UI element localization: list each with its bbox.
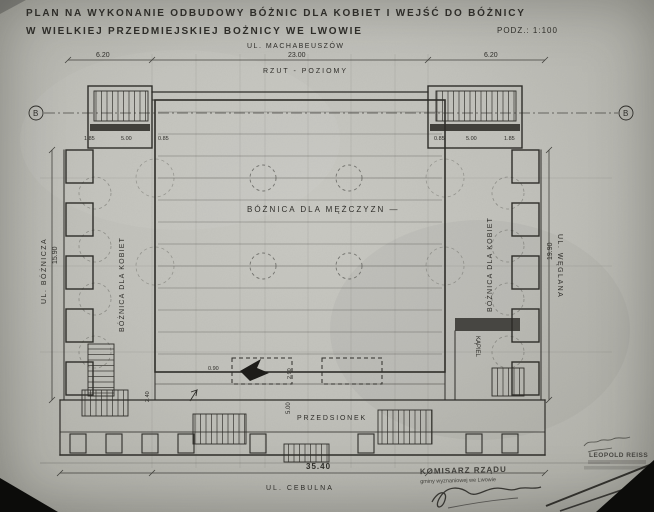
section-marker-left: B [33, 109, 38, 118]
room-label-main-hall: BÓŻNICA DLA MĘŻCZYZN — [247, 205, 399, 214]
new-wall-fill-right [430, 124, 520, 131]
staircase-annex [492, 368, 524, 396]
room-label-right-gallery: BÓŻNICA DLA KOBIET [485, 217, 494, 312]
dim-entry-depth: 2.90 [287, 368, 293, 379]
plan-title-line1: PLAN NA WYKONANIE ODBUDOWY BÓŻNIC DLA KO… [26, 6, 526, 19]
dim-stair-small: 2.40 [145, 391, 151, 402]
dim-stair-left-a: 1.85 [84, 136, 95, 142]
scale-note: PODZ.: 1:100 [497, 26, 558, 35]
street-label-bottom: UL. CEBULNA [266, 485, 334, 492]
staircase-top-left [94, 91, 148, 121]
staircase-bottom-entry [284, 444, 329, 462]
section-marker-right: B [623, 109, 628, 118]
dim-stair-right-c: 1.85 [504, 136, 515, 142]
architect-stamp-name: LEOPOLD REISS [589, 452, 648, 459]
dim-right-height: 19.90 [547, 242, 554, 260]
street-label-top: UL. MACHABEUSZÓW [247, 41, 345, 50]
dim-stair-right-b: 5.00 [466, 136, 477, 142]
architect-stamp-line2 [588, 460, 646, 464]
staircase-bottom-left [82, 390, 128, 416]
street-label-right: UL. WĘGLANA [556, 234, 563, 298]
street-label-left: UL. BÓŻNICZA [39, 238, 48, 304]
floor-plan-drawing: B B PLAN NA WYKONANIE ODBUDOWY BÓŻNIC DL… [0, 0, 654, 512]
dim-top-center: 23.00 [288, 52, 306, 59]
dim-top-left: 6.20 [96, 52, 110, 59]
scanned-architectural-plan: B B PLAN NA WYKONANIE ODBUDOWY BÓŻNIC DL… [0, 0, 654, 512]
dim-vestibule-depth: 5.00 [286, 402, 292, 414]
staircase-left-wing [88, 344, 114, 396]
new-wall-fill-left [90, 124, 150, 131]
dim-stair-left-b: 5.00 [121, 136, 132, 142]
staircase-top-right [436, 91, 516, 121]
room-label-bath: KĄPIEL [474, 336, 480, 358]
room-label-left-gallery: BÓŻNICA DLA KOBIET [117, 237, 126, 332]
staircase-bottom-center-left [193, 414, 246, 444]
staircase-bottom-center-right [378, 410, 432, 444]
dim-stair-left-c: 0.85 [158, 136, 169, 142]
drawing-type-label: RZUT - POZIOMY [263, 68, 348, 75]
new-wall-fill-annex [455, 318, 520, 331]
dim-entry-offset: 0.90 [208, 366, 219, 372]
plan-title-line2: W WIELKIEJ PRZEDMIEJSKIEJ BOŻNICY WE LWO… [26, 24, 363, 37]
dim-left-height: 15.90 [52, 246, 59, 264]
dim-top-right: 6.20 [484, 52, 498, 59]
dim-bottom-width: 35.40 [306, 462, 331, 471]
room-label-vestibule: PRZEDSIONEK [297, 415, 367, 422]
dim-stair-right-a: 0.85 [434, 136, 445, 142]
paper-texture [0, 0, 654, 512]
